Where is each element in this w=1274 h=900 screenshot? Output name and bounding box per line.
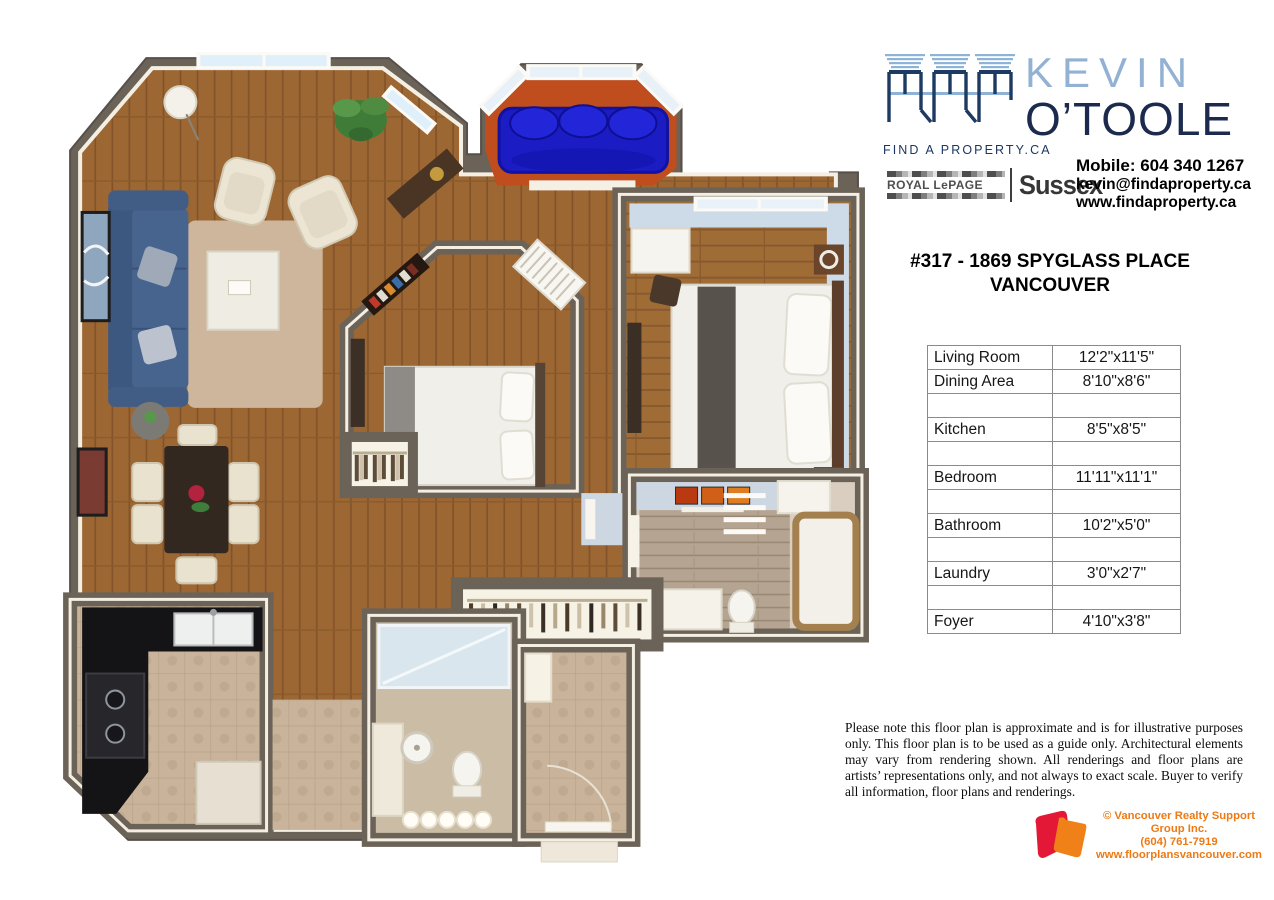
agent-last-name: O’TOOLE bbox=[1025, 96, 1255, 142]
room-size-cell bbox=[1053, 394, 1181, 418]
room-size-cell: 12'2"x11'5" bbox=[1053, 346, 1181, 370]
royal-lepage-mark: ROYAL LePAGE bbox=[887, 171, 1005, 199]
contact-website: www.findaproperty.ca bbox=[1076, 194, 1251, 213]
hall-door bbox=[585, 499, 595, 539]
vanity-lights bbox=[403, 812, 491, 828]
desk bbox=[631, 228, 689, 272]
nightstand bbox=[814, 245, 844, 275]
room-name-cell bbox=[928, 490, 1053, 514]
contact-email: kevin@findaproperty.ca bbox=[1076, 176, 1251, 195]
media-console bbox=[351, 339, 365, 427]
royal-lepage-logo: ROYAL LePAGE Sussex bbox=[887, 168, 1108, 202]
room-name-cell: Bathroom bbox=[928, 514, 1053, 538]
vancouver-realty-logo-icon bbox=[1033, 810, 1087, 862]
logo-divider bbox=[1010, 168, 1012, 202]
table-row bbox=[928, 442, 1181, 466]
floor-lamp bbox=[164, 86, 196, 118]
master-bedroom bbox=[619, 194, 858, 505]
table-row bbox=[928, 586, 1181, 610]
room-size-cell: 3'0"x2'7" bbox=[1053, 562, 1181, 586]
find-a-property-wordmark: FIND A PROPERTY.CA bbox=[883, 143, 1023, 157]
room-size-cell: 11'11"x11'1" bbox=[1053, 466, 1181, 490]
room-name-cell: Kitchen bbox=[928, 418, 1053, 442]
room-name-cell: Bedroom bbox=[928, 466, 1053, 490]
table-row: Dining Area8'10"x8'6" bbox=[928, 370, 1181, 394]
balcony bbox=[478, 64, 684, 190]
second-bathroom bbox=[369, 615, 519, 840]
kitchen bbox=[70, 599, 266, 831]
room-table-body: Living Room12'2"x11'5"Dining Area8'10"x8… bbox=[928, 346, 1181, 634]
footer-credit: © Vancouver Realty Support Group Inc. (6… bbox=[1033, 810, 1265, 863]
room-dimensions-table: Living Room12'2"x11'5"Dining Area8'10"x8… bbox=[927, 345, 1181, 634]
toilet bbox=[453, 752, 481, 788]
room-name-cell bbox=[928, 586, 1053, 610]
stove bbox=[86, 674, 144, 758]
room-name-cell bbox=[928, 442, 1053, 466]
info-panel: FIND A PROPERTY.CA KEVIN O’TOOLE ROYAL L… bbox=[845, 0, 1265, 900]
foyer bbox=[519, 645, 633, 839]
room-size-cell bbox=[1053, 538, 1181, 562]
footer-website: www.floorplansvancouver.com bbox=[1093, 849, 1265, 863]
disclaimer-text: Please note this floor plan is approxima… bbox=[845, 720, 1243, 800]
floor-plan-region bbox=[28, 22, 880, 878]
room-size-cell: 4'10"x3'8" bbox=[1053, 610, 1181, 634]
royal-lepage-brand: ROYAL LePAGE bbox=[887, 177, 1005, 193]
sofa bbox=[108, 190, 190, 407]
address-line1: #317 - 1869 SPYGLASS PLACE bbox=[900, 250, 1200, 274]
contact-info: Mobile: 604 340 1267 kevin@findaproperty… bbox=[1076, 156, 1251, 213]
wall-art bbox=[82, 212, 109, 320]
table-row: Foyer4'10"x3'8" bbox=[928, 610, 1181, 634]
room-name-cell: Living Room bbox=[928, 346, 1053, 370]
room-name-cell: Foyer bbox=[928, 610, 1053, 634]
bathroom bbox=[629, 475, 862, 635]
desk-chair bbox=[649, 274, 682, 307]
dresser bbox=[627, 323, 641, 433]
entry-step bbox=[541, 842, 617, 862]
table-row: Laundry3'0"x2'7" bbox=[928, 562, 1181, 586]
royal-lepage-stripes-bottom bbox=[887, 193, 1005, 199]
toilet bbox=[729, 590, 755, 624]
footer-company: © Vancouver Realty Support Group Inc. bbox=[1093, 810, 1265, 836]
room-size-cell: 8'10"x8'6" bbox=[1053, 370, 1181, 394]
table-row: Bathroom10'2"x5'0" bbox=[928, 514, 1181, 538]
table-row bbox=[928, 538, 1181, 562]
table-row: Bedroom11'11"x11'1" bbox=[928, 466, 1181, 490]
bathroom-door bbox=[629, 515, 639, 567]
kitchen-island bbox=[196, 762, 260, 824]
entry-door bbox=[545, 822, 611, 832]
wall-art bbox=[78, 449, 106, 515]
hallway-tile bbox=[273, 700, 369, 830]
room-size-cell: 10'2"x5'0" bbox=[1053, 514, 1181, 538]
contact-mobile: Mobile: 604 340 1267 bbox=[1076, 156, 1251, 176]
table-row: Living Room12'2"x11'5" bbox=[928, 346, 1181, 370]
room-name-cell: Laundry bbox=[928, 562, 1053, 586]
find-a-property-logo: FIND A PROPERTY.CA bbox=[883, 52, 1023, 157]
room-size-cell: 8'5"x8'5" bbox=[1053, 418, 1181, 442]
agent-first-name: KEVIN bbox=[1025, 52, 1255, 94]
laundry-nook bbox=[778, 481, 830, 513]
room-size-cell bbox=[1053, 586, 1181, 610]
room-name-cell bbox=[928, 538, 1053, 562]
table-row bbox=[928, 394, 1181, 418]
agent-name: KEVIN O’TOOLE bbox=[1025, 52, 1255, 142]
find-a-property-logo-icon bbox=[883, 52, 1017, 134]
headboard bbox=[832, 281, 844, 477]
room-size-cell bbox=[1053, 490, 1181, 514]
room-name-cell bbox=[928, 394, 1053, 418]
flower-centerpiece bbox=[188, 485, 204, 501]
room-name-cell: Dining Area bbox=[928, 370, 1053, 394]
floor-plan-rendering bbox=[28, 22, 880, 878]
address-line2: VANCOUVER bbox=[900, 274, 1200, 298]
property-address: #317 - 1869 SPYGLASS PLACE VANCOUVER bbox=[900, 250, 1200, 298]
table-row bbox=[928, 490, 1181, 514]
footer-phone: (604) 761-7919 bbox=[1093, 836, 1265, 849]
closet bbox=[347, 437, 413, 491]
vanity bbox=[373, 724, 403, 816]
table-row: Kitchen8'5"x8'5" bbox=[928, 418, 1181, 442]
room-size-cell bbox=[1053, 442, 1181, 466]
